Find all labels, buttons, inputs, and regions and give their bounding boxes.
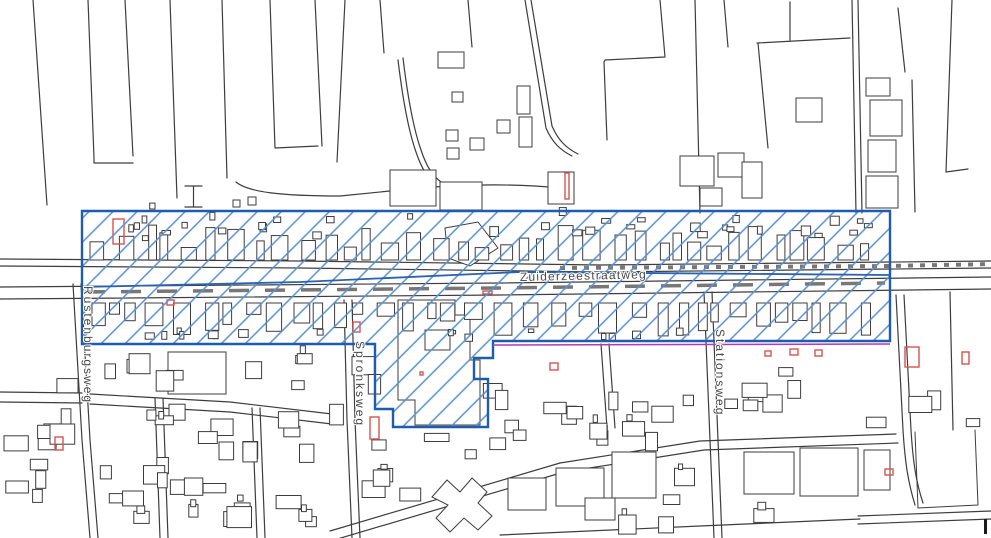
scan-corner-mark	[984, 519, 987, 534]
label-zuiderzeestraatweg: Zuiderzeestraatweg	[520, 267, 647, 284]
label-rustenburgsweg: Rustenburgsweg	[81, 286, 95, 404]
overlay-secondary-magenta-line	[493, 344, 890, 345]
label-stationsweg: Stationsweg	[713, 329, 727, 416]
buildings-residential	[4, 346, 980, 534]
i-beam-symbol	[185, 186, 202, 207]
map-viewport: Zuiderzeestraatweg Rustenburgsweg Spronk…	[0, 0, 991, 538]
cadastral-map: Zuiderzeestraatweg Rustenburgsweg Spronk…	[0, 0, 991, 538]
field-parcel-lines	[33, 0, 968, 213]
label-spronksweg: Spronksweg	[353, 341, 367, 427]
